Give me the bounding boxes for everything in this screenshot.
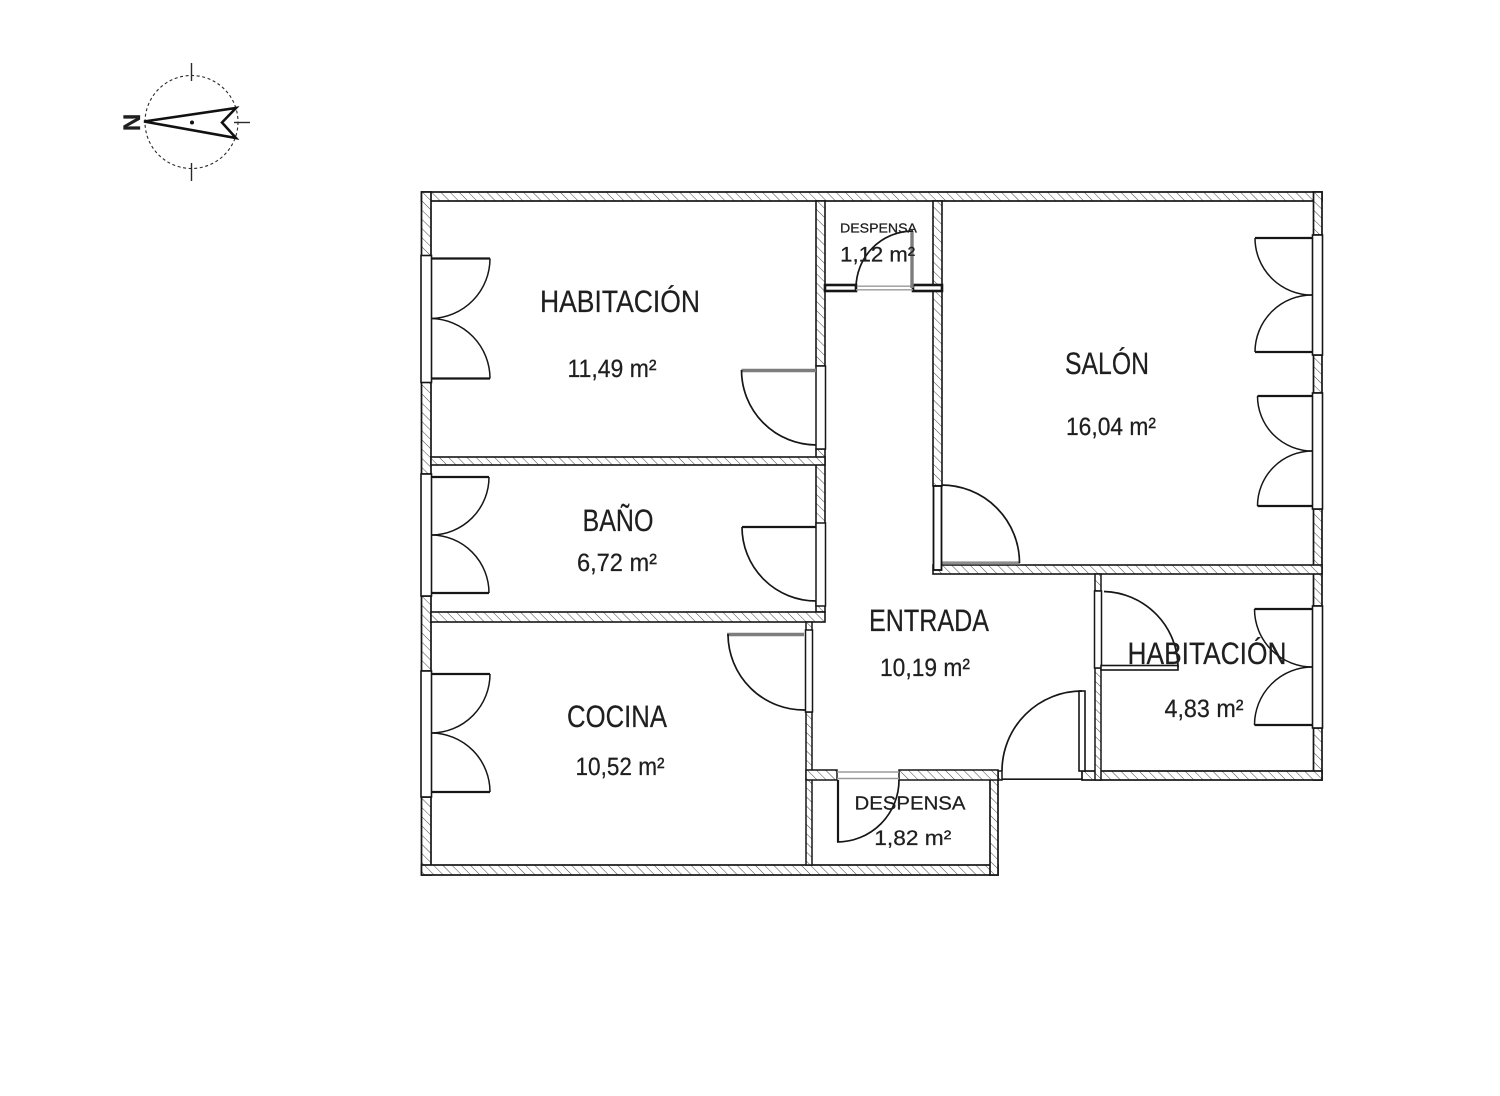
svg-text:SALÓN: SALÓN [1065, 346, 1149, 381]
svg-text:11,49 m²: 11,49 m² [568, 355, 657, 383]
svg-text:BAÑO: BAÑO [583, 503, 654, 538]
svg-text:HABITACIÓN: HABITACIÓN [1128, 636, 1287, 671]
svg-text:N: N [119, 114, 146, 131]
svg-text:DESPENSA: DESPENSA [840, 221, 917, 236]
svg-text:HABITACIÓN: HABITACIÓN [540, 284, 700, 319]
svg-text:ENTRADA: ENTRADA [869, 603, 989, 638]
svg-text:4,83 m²: 4,83 m² [1165, 695, 1244, 723]
svg-text:10,19 m²: 10,19 m² [880, 654, 970, 682]
svg-text:DESPENSA: DESPENSA [855, 794, 966, 815]
svg-text:10,52 m²: 10,52 m² [576, 753, 665, 781]
svg-text:6,72 m²: 6,72 m² [577, 549, 657, 577]
svg-text:1,82 m²: 1,82 m² [874, 827, 951, 850]
svg-text:1,12 m²: 1,12 m² [840, 244, 915, 267]
svg-text:COCINA: COCINA [567, 699, 667, 734]
svg-text:16,04 m²: 16,04 m² [1066, 413, 1156, 441]
